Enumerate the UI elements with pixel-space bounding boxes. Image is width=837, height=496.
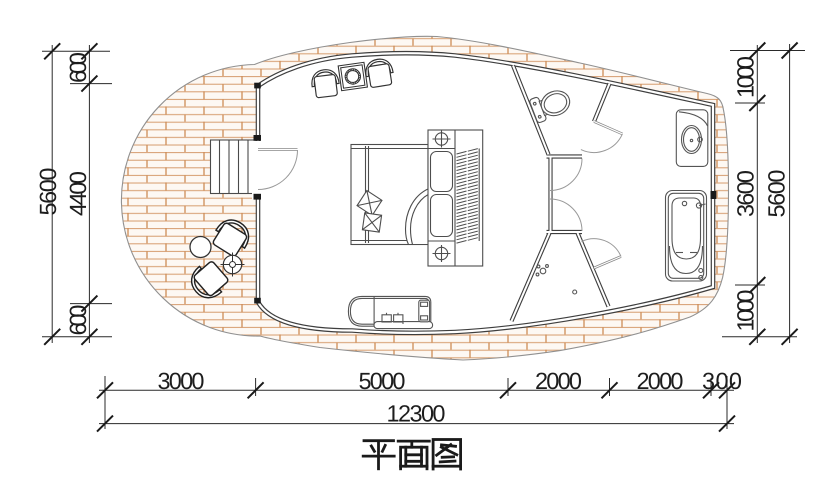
svg-text:5600: 5600: [35, 168, 61, 216]
svg-text:4400: 4400: [65, 171, 91, 216]
svg-text:600: 600: [65, 305, 91, 336]
svg-text:2000: 2000: [637, 368, 684, 394]
svg-text:600: 600: [65, 52, 91, 83]
svg-text:1000: 1000: [733, 290, 759, 332]
svg-text:5000: 5000: [359, 368, 406, 394]
svg-text:2000: 2000: [535, 368, 582, 394]
svg-text:12300: 12300: [387, 401, 446, 427]
svg-text:300: 300: [702, 368, 742, 394]
svg-text:3000: 3000: [158, 368, 205, 394]
svg-text:3600: 3600: [733, 170, 759, 217]
svg-text:1000: 1000: [733, 56, 759, 98]
svg-text:5600: 5600: [764, 170, 790, 218]
